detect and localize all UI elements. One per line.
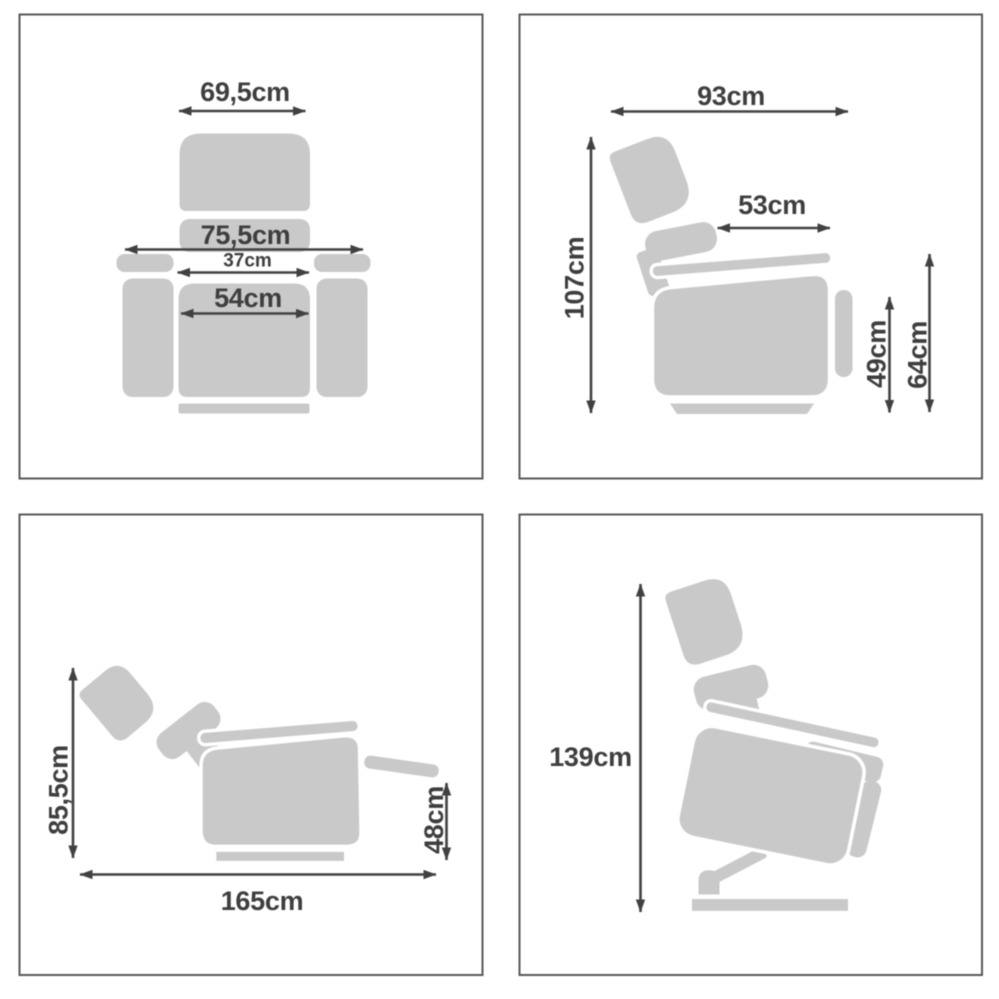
svg-text:75,5cm: 75,5cm	[201, 220, 291, 250]
svg-text:107cm: 107cm	[560, 237, 590, 320]
svg-text:69,5cm: 69,5cm	[200, 77, 290, 107]
svg-text:64cm: 64cm	[903, 321, 933, 389]
svg-text:93cm: 93cm	[697, 81, 765, 111]
svg-text:53cm: 53cm	[738, 190, 806, 220]
svg-text:54cm: 54cm	[214, 283, 282, 313]
svg-text:49cm: 49cm	[862, 320, 892, 388]
svg-text:37cm: 37cm	[223, 251, 272, 272]
svg-text:139cm: 139cm	[549, 742, 632, 772]
svg-text:85,5cm: 85,5cm	[44, 745, 74, 835]
svg-text:48cm: 48cm	[419, 786, 449, 854]
svg-text:165cm: 165cm	[221, 886, 304, 916]
